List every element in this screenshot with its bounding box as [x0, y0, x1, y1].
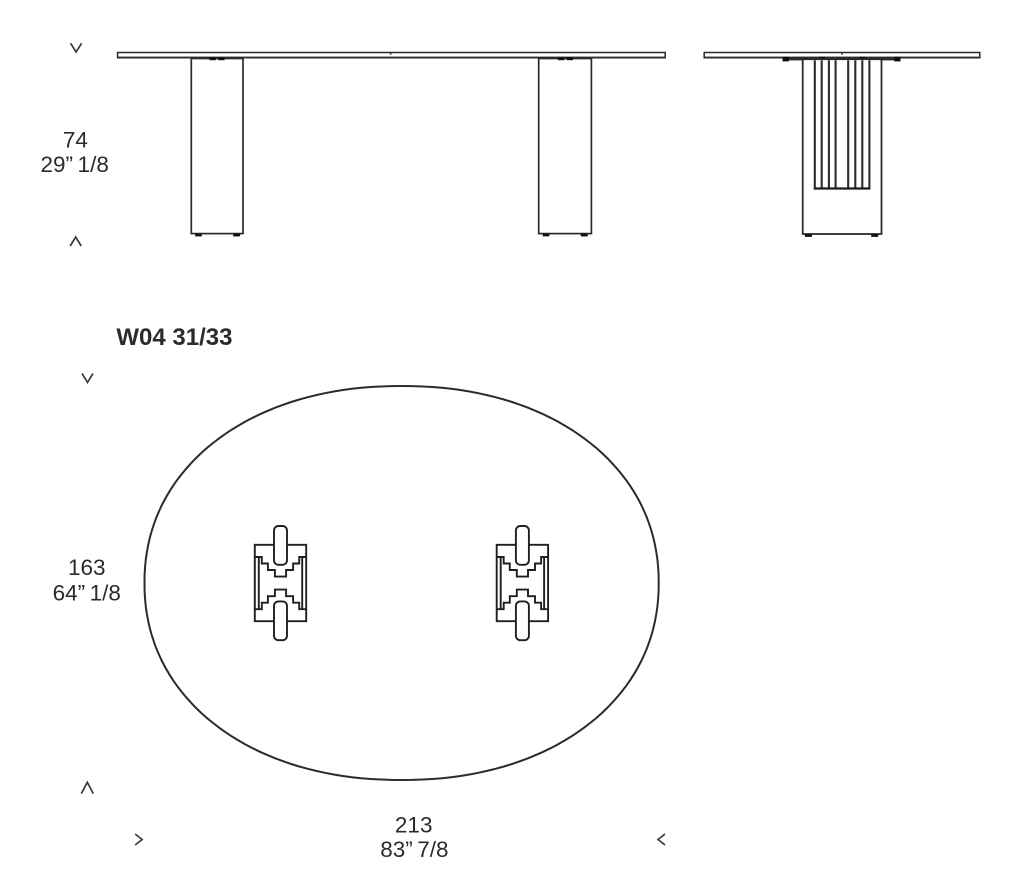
- svg-text:W04 31/33: W04 31/33: [116, 324, 232, 351]
- svg-text:64” 1/8: 64” 1/8: [53, 581, 121, 606]
- svg-text:74: 74: [63, 128, 88, 153]
- svg-text:29” 1/8: 29” 1/8: [41, 152, 109, 177]
- svg-text:83” 7/8: 83” 7/8: [380, 837, 448, 862]
- svg-text:213: 213: [395, 813, 433, 838]
- svg-text:163: 163: [68, 555, 106, 580]
